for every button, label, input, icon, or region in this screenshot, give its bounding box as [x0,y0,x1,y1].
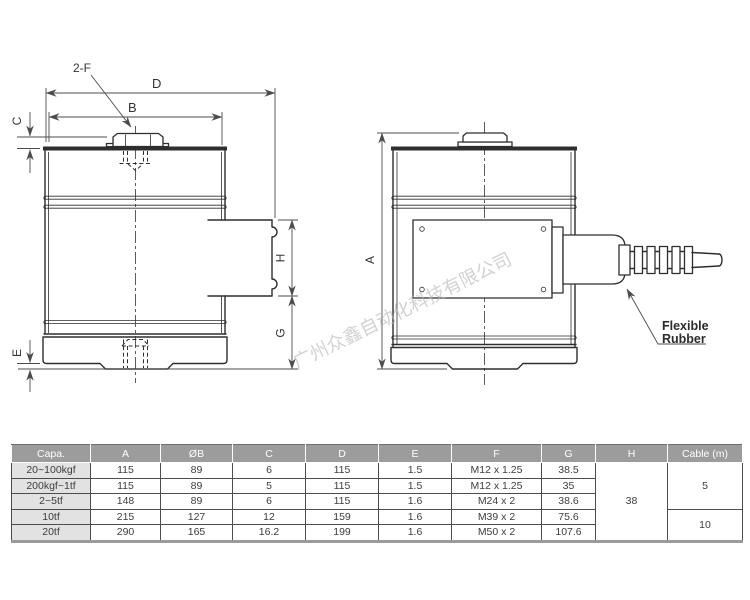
value-cell: 127 [161,509,233,525]
value-cell: 115 [91,463,161,479]
dim-c-label: C [10,116,24,125]
technical-drawing: 2-F D B C E [0,0,750,440]
header-row: Capa. A ØB C D E F G H Cable (m) [12,445,743,463]
value-cell: 290 [91,525,161,542]
value-cell: 38.6 [542,494,596,510]
merged-cable-cell: 10 [668,509,743,541]
value-cell: 165 [161,525,233,542]
value-cell: 1.6 [379,494,452,510]
value-cell: 215 [91,509,161,525]
value-cell: 89 [161,463,233,479]
value-cell: 6 [233,494,306,510]
value-cell: 6 [233,463,306,479]
cell-body-left [43,147,227,370]
value-cell: M12 x 1.25 [452,478,542,494]
value-cell: 89 [161,494,233,510]
capa-cell: 20~100kgf [12,463,91,479]
value-cell: 35 [542,478,596,494]
value-cell: 107.6 [542,525,596,542]
value-cell: 159 [306,509,379,525]
value-cell: 115 [306,494,379,510]
value-cell: M50 x 2 [452,525,542,542]
cable [692,253,722,268]
value-cell: 115 [306,478,379,494]
merged-cable-cell: 5 [668,463,743,510]
bolt-callout-label: 2-F [73,61,91,75]
spec-table: Capa. A ØB C D E F G H Cable (m) 20~100k… [11,444,743,543]
value-cell: M24 x 2 [452,494,542,510]
left-view: 2-F D B C E [10,61,298,392]
dimension-g: G [274,296,293,369]
col-header-h: H [596,445,668,463]
flexible-rubber-callout: Flexible Rubber [627,289,709,346]
col-header-a: A [91,445,161,463]
value-cell: 1.5 [379,463,452,479]
flexible-rubber-line1: Flexible [662,319,709,333]
value-cell: 1.5 [379,478,452,494]
connector-block [208,220,277,296]
col-header-f: F [452,445,542,463]
load-cell-datasheet: 2-F D B C E [0,0,750,600]
dim-h-label: H [274,254,288,263]
col-header-capa: Capa. [12,445,91,463]
value-cell: 16.2 [233,525,306,542]
dimension-c: C [10,112,107,173]
value-cell: 115 [91,478,161,494]
dimension-e: E [10,340,40,392]
value-cell: 89 [161,478,233,494]
value-cell: 1.6 [379,525,452,542]
value-cell: M12 x 1.25 [452,463,542,479]
load-button [458,133,512,147]
dim-d-label: D [152,76,161,91]
value-cell: 199 [306,525,379,542]
value-cell: 115 [306,463,379,479]
value-cell: 12 [233,509,306,525]
col-header-e: E [379,445,452,463]
capa-cell: 20tf [12,525,91,542]
dim-a-label: A [363,256,377,264]
dim-e-label: E [10,349,24,357]
cable-gland [552,227,693,293]
value-cell: 38.5 [542,463,596,479]
value-cell: 1.6 [379,509,452,525]
value-cell: 5 [233,478,306,494]
watermark: 广州众鑫自动化科技有限公司 [290,248,515,372]
capa-cell: 200kgf~1tf [12,478,91,494]
capa-cell: 10tf [12,509,91,525]
col-header-c: C [233,445,306,463]
mounting-nut [107,134,169,147]
col-header-g: G [542,445,596,463]
capa-cell: 2~5tf [12,494,91,510]
merged-h-cell: 38 [596,463,668,542]
dim-b-label: B [128,100,137,115]
dim-g-label: G [274,328,288,337]
right-view: A Flexible Rubber [363,122,722,385]
flexible-rubber-line2: Rubber [662,332,706,346]
col-header-ob: ØB [161,445,233,463]
value-cell: 148 [91,494,161,510]
col-header-cable: Cable (m) [668,445,743,463]
col-header-d: D [306,445,379,463]
value-cell: M39 x 2 [452,509,542,525]
value-cell: 75.6 [542,509,596,525]
table-row: 20~100kgf 115 89 6 115 1.5 M12 x 1.25 38… [12,463,743,479]
